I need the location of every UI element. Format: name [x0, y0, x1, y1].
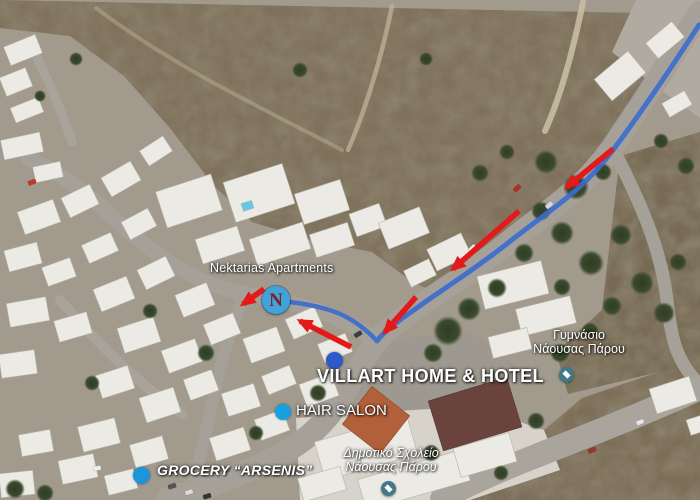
label-gymnasio-line1: Γυμνάσιο — [518, 328, 640, 342]
label-hair-salon: HAIR SALON — [296, 402, 387, 419]
label-nektarias-apartments: Nektarias Apartments — [210, 261, 334, 275]
school-pin-icon — [559, 367, 574, 382]
nektarias-n-marker: N — [262, 286, 290, 314]
grocery-location-dot — [133, 467, 150, 484]
satellite-map-image — [0, 0, 700, 500]
school-pin-icon — [381, 481, 396, 496]
n-marker-letter: N — [269, 291, 283, 310]
pin-tip — [564, 379, 570, 384]
map-container: N Nektarias Apartments VILLART HOME & HO… — [0, 0, 700, 500]
label-dimotiko-scholeio: Δημοτικό Σχολείο Νάουσας Πάρου — [328, 446, 454, 474]
label-villart-home-hotel: VILLART HOME & HOTEL — [317, 366, 544, 387]
label-gymnasio-naousas: Γυμνάσιο Νάουσας Πάρου — [518, 328, 640, 356]
graduation-cap-icon — [384, 484, 392, 492]
graduation-cap-icon — [562, 370, 570, 378]
label-gymnasio-line2: Νάουσας Πάρου — [518, 342, 640, 356]
label-grocery-arsenis: GROCERY “ARSENIS” — [157, 462, 313, 478]
hair-salon-location-dot — [275, 404, 291, 420]
label-dimotiko-line1: Δημοτικό Σχολείο — [328, 446, 454, 460]
label-dimotiko-line2: Νάουσας Πάρου — [328, 460, 454, 474]
